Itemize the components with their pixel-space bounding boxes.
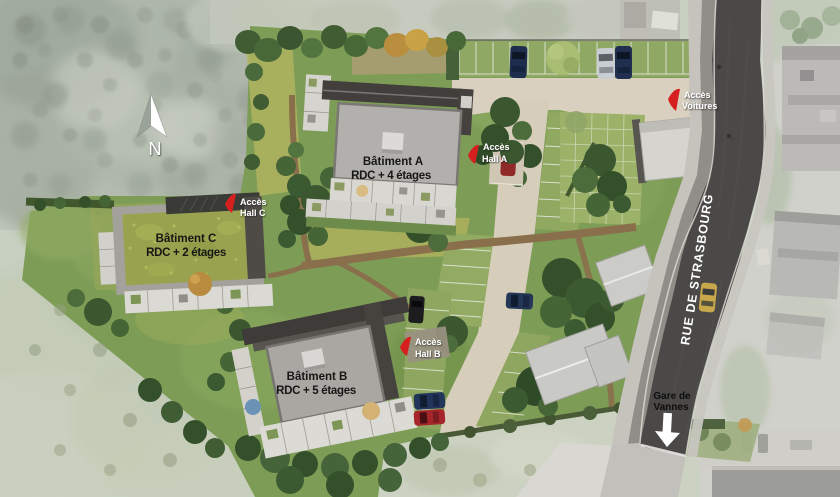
svg-text:Accès: Accès [684,90,711,100]
svg-text:Bâtiment A: Bâtiment A [363,156,423,168]
svg-text:Accès: Accès [240,197,267,207]
svg-text:Voitures: Voitures [682,101,717,111]
svg-text:Bâtiment B: Bâtiment B [287,371,348,383]
svg-text:Accès: Accès [483,142,510,152]
svg-text:N: N [149,139,162,159]
svg-text:Bâtiment C: Bâtiment C [156,233,217,245]
svg-text:Accès: Accès [415,337,442,347]
svg-text:Hall A: Hall A [482,154,508,164]
svg-text:RDC + 5 étages: RDC + 5 étages [276,385,356,397]
svg-text:Vannes: Vannes [653,402,688,413]
svg-text:Gare de: Gare de [653,391,691,402]
svg-text:Hall C: Hall C [240,208,266,218]
svg-text:RDC + 4 étages: RDC + 4 étages [351,170,431,182]
svg-text:RDC + 2 étages: RDC + 2 étages [146,247,226,259]
svg-text:Hall B: Hall B [415,349,441,359]
